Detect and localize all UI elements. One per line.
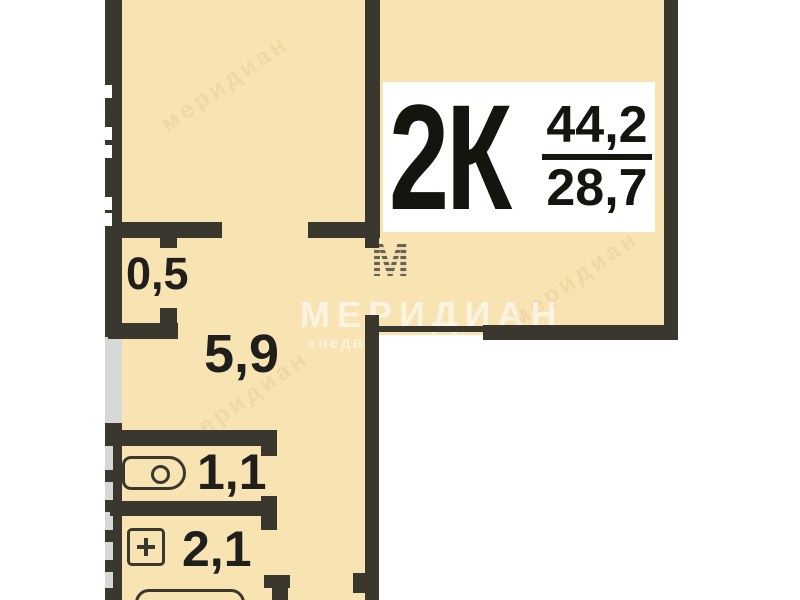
wall-living-right-exterior <box>664 0 678 340</box>
wall-storage-bottom <box>108 323 178 339</box>
wc-area-label: 1,1 <box>197 447 267 497</box>
wall-hallway-right <box>365 315 379 600</box>
floor-plan: меридиан меридиан меридиан М МЕРИДИАН «н… <box>0 0 800 600</box>
bathtub-icon <box>135 589 245 600</box>
wall-living-bottom <box>483 325 678 340</box>
wall-notch <box>105 145 112 158</box>
living-area-value: 28,7 <box>542 160 652 215</box>
toilet-icon <box>122 456 186 490</box>
sink-icon <box>127 528 165 566</box>
unit-type-label: 2К <box>389 82 509 232</box>
wall-wc-bathroom-divider <box>110 501 267 516</box>
wall-bedroom-bottom-left <box>118 222 222 238</box>
wall-bathroom-door-jamb-top <box>261 496 277 530</box>
wall-tick <box>105 560 113 572</box>
storage-area-label: 0,5 <box>126 251 189 296</box>
unit-area-fraction: 44,2 28,7 <box>542 99 652 215</box>
wall-tick <box>105 470 113 482</box>
wall-notch <box>105 197 112 210</box>
wall-tick <box>105 530 113 542</box>
wall-notch <box>105 127 112 140</box>
wall-bathroom-corner-bottom <box>272 575 288 600</box>
unit-area-label-box: 2К 44,2 28,7 <box>383 82 655 232</box>
wall-left-light-segment <box>105 337 122 423</box>
wall-entrance-door-jamb-right <box>353 573 365 593</box>
hallway-area-label: 5,9 <box>204 327 279 381</box>
wall-notch <box>105 213 112 226</box>
total-area-value: 44,2 <box>542 99 652 160</box>
wall-tick <box>105 588 113 600</box>
toilet-circle <box>151 465 170 484</box>
wall-bedroom-bottom-right <box>308 222 380 238</box>
wall-divider-bedroom-living <box>365 0 380 238</box>
sink-plus-icon <box>144 538 148 556</box>
wall-storage-door-jamb-top <box>160 238 177 248</box>
bathroom-area-label: 2,1 <box>182 524 252 574</box>
wall-living-door-jamb-top <box>365 238 379 248</box>
wall-notch <box>105 85 112 98</box>
wall-living-bottom-thin <box>378 326 484 332</box>
wall-tick <box>105 500 113 512</box>
